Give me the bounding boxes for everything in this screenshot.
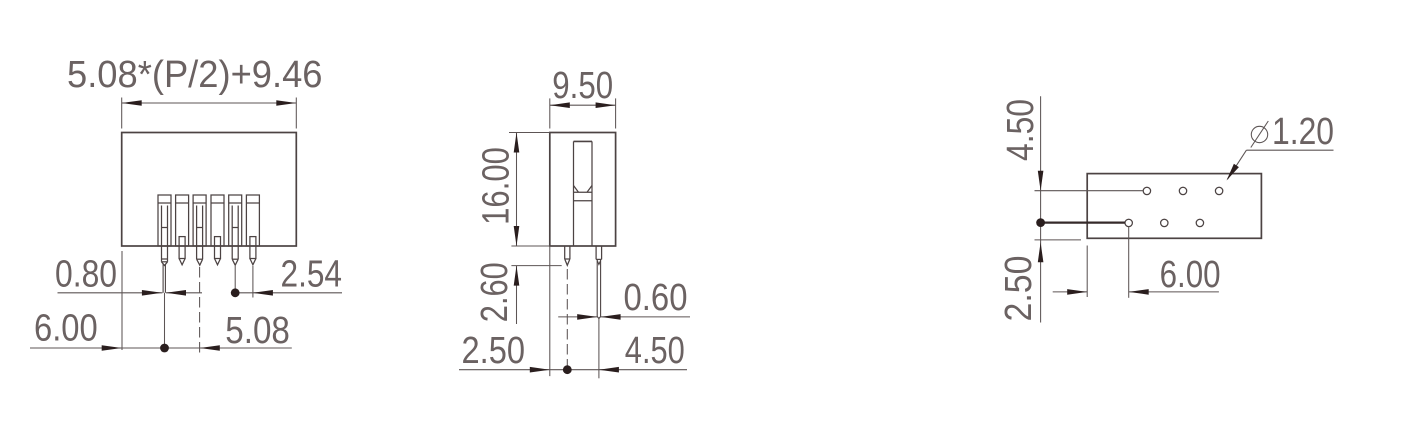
svg-text:6.00: 6.00 <box>1160 254 1221 296</box>
svg-text:9.50: 9.50 <box>552 65 613 107</box>
svg-text:5.08: 5.08 <box>225 310 290 352</box>
svg-text:0.60: 0.60 <box>624 277 688 319</box>
svg-text:2.50: 2.50 <box>998 256 1040 322</box>
svg-text:2.60: 2.60 <box>474 262 516 322</box>
svg-text:1.20: 1.20 <box>1272 111 1334 153</box>
svg-text:16.00: 16.00 <box>475 147 517 225</box>
svg-text:2.54: 2.54 <box>281 254 343 296</box>
svg-text:6.00: 6.00 <box>34 308 98 350</box>
svg-text:0.80: 0.80 <box>55 254 117 296</box>
svg-text:2.50: 2.50 <box>462 330 526 372</box>
svg-text:4.50: 4.50 <box>625 330 685 372</box>
svg-text:4.50: 4.50 <box>1000 99 1042 161</box>
svg-text:5.08*(P/2)+9.46: 5.08*(P/2)+9.46 <box>67 54 323 96</box>
